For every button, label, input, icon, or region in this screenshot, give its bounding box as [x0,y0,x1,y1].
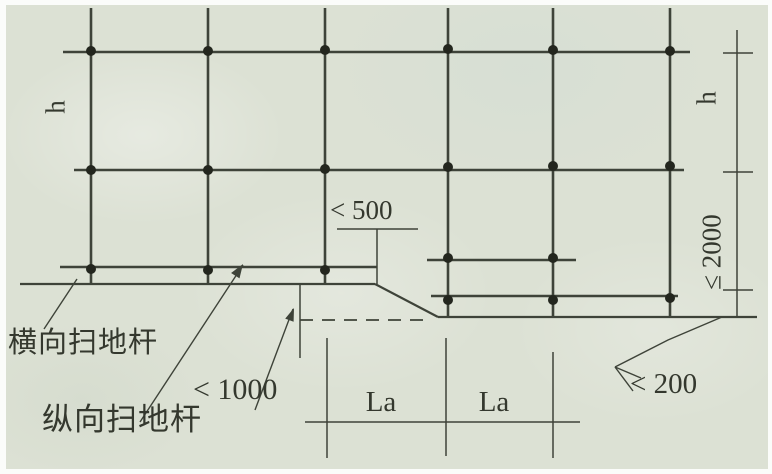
la-span-label-2: La [479,386,510,418]
coupler-dot [86,46,96,56]
coupler-dot [548,295,558,305]
coupler-dot [86,264,96,274]
coupler-dot [86,165,96,175]
coupler-dot [665,46,675,56]
coupler-dot [548,253,558,263]
transverse-sweeper-leader [44,279,77,329]
height-label-right: h [691,91,721,105]
labels: h h ≤ 2000 < 500 < 1000 横向扫地杆 纵向扫地杆 La L… [8,91,726,437]
right-dimension-chain [723,30,753,317]
arrowhead [285,308,294,322]
scanned-page: h h ≤ 2000 < 500 < 1000 横向扫地杆 纵向扫地杆 La L… [0,0,772,474]
coupler-dot [665,293,675,303]
step-height-label: < 1000 [193,373,277,406]
edge-offset-annotation [337,229,418,284]
transverse-sweeper-label: 横向扫地杆 [8,326,158,359]
coupler-dot [203,46,213,56]
coupler-dot [443,295,453,305]
la-span-label-1: La [366,386,397,418]
scaffold-sweeper-rod-diagram: h h ≤ 2000 < 500 < 1000 横向扫地杆 纵向扫地杆 La L… [0,0,772,474]
coupler-dot [665,161,675,171]
step-slope-line [375,284,438,317]
coupler-dot [203,265,213,275]
spacing-max-label: ≤ 2000 [696,214,726,290]
posts [91,8,670,317]
longitudinal-sweeper-label: 纵向扫地杆 [42,402,202,437]
base-offset-label: < 200 [630,368,697,400]
coupler-dot [320,45,330,55]
coupler-dot [443,253,453,263]
rails [60,52,690,296]
la-span-dimension [305,338,580,458]
coupler-dot [443,162,453,172]
edge-offset-label: < 500 [330,195,392,225]
height-label-left: h [40,100,70,114]
coupler-dot [203,165,213,175]
coupler-dot [443,44,453,54]
coupler-dot [548,161,558,171]
coupler-dot [548,45,558,55]
base-offset-leader [615,317,722,367]
coupler-dot [320,265,330,275]
coupler-dot [320,164,330,174]
